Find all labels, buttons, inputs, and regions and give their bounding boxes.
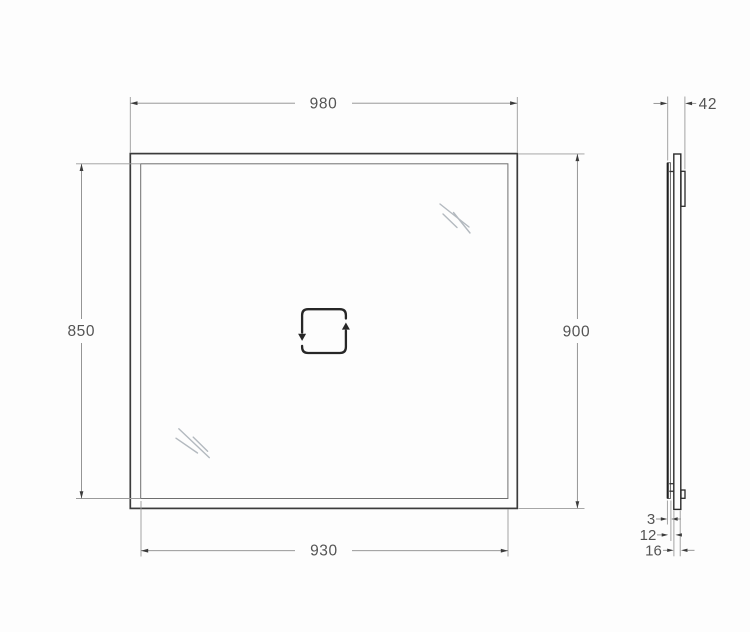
svg-text:850: 850 xyxy=(67,323,95,340)
svg-text:930: 930 xyxy=(310,543,338,560)
svg-text:980: 980 xyxy=(310,96,338,113)
svg-text:16: 16 xyxy=(645,543,662,560)
svg-text:42: 42 xyxy=(699,96,717,113)
svg-text:900: 900 xyxy=(563,323,591,340)
svg-text:3: 3 xyxy=(647,511,655,528)
